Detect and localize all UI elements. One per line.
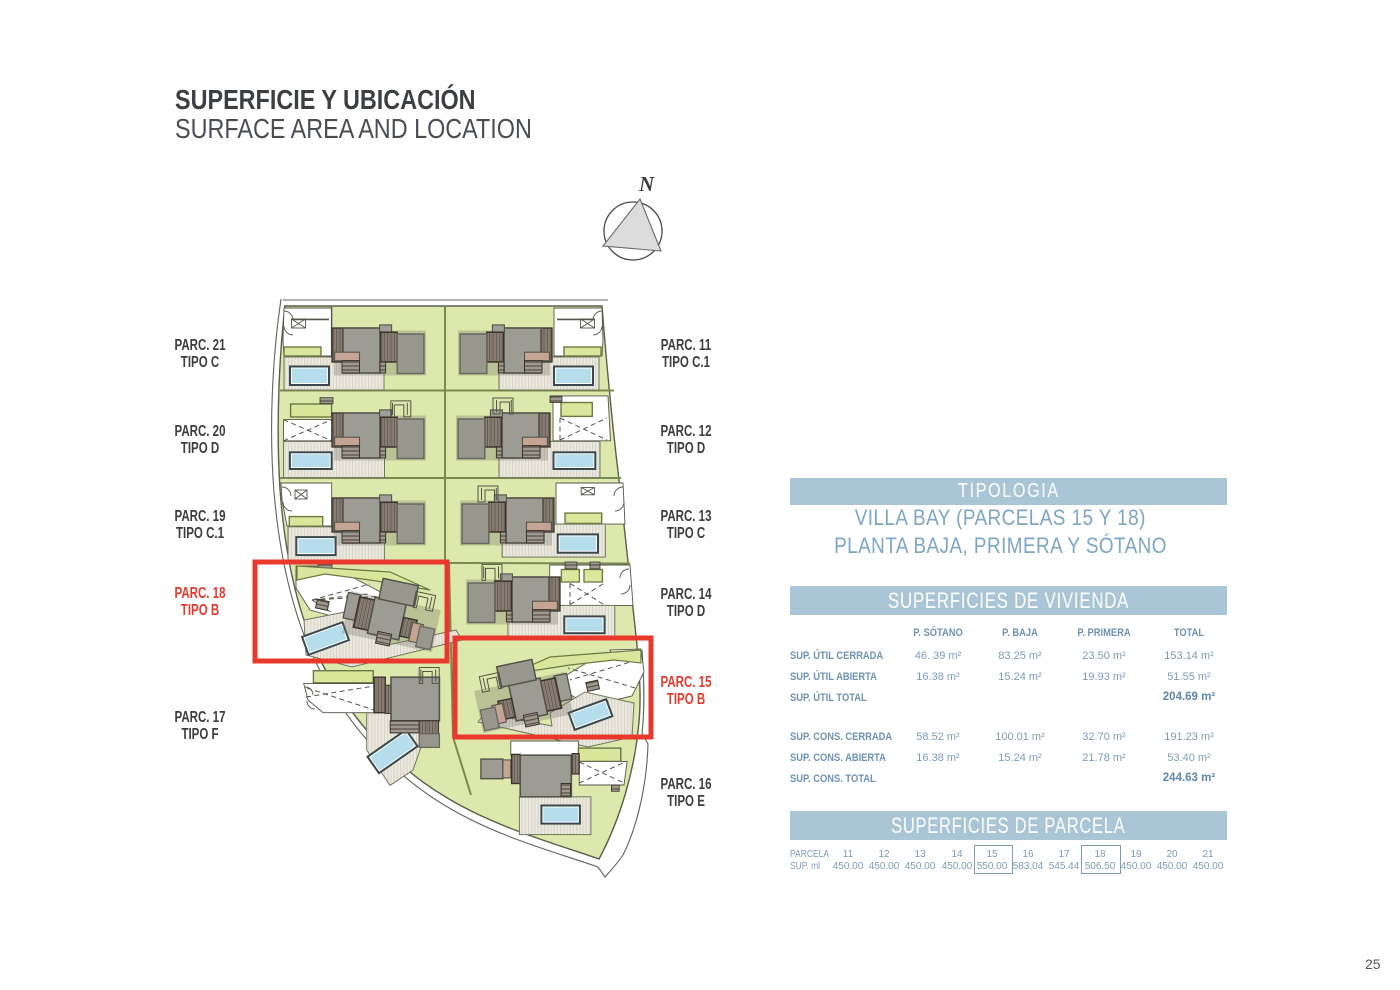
svg-text:N: N: [638, 172, 655, 196]
